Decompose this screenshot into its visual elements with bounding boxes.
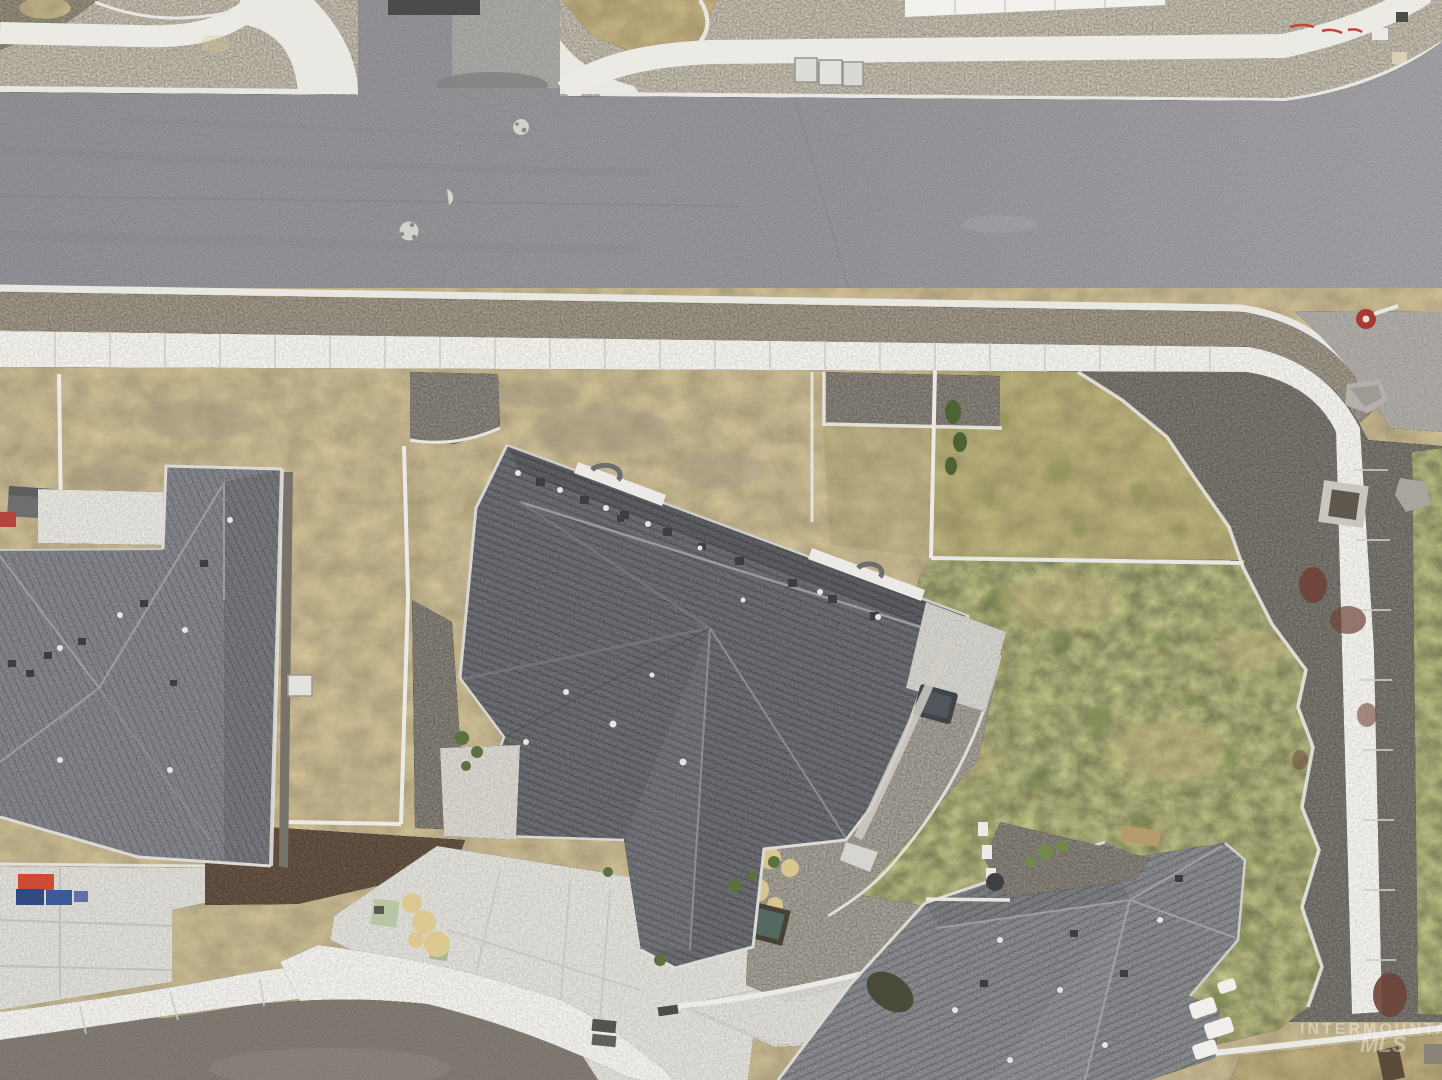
svg-text:MLS: MLS xyxy=(1360,1032,1407,1057)
